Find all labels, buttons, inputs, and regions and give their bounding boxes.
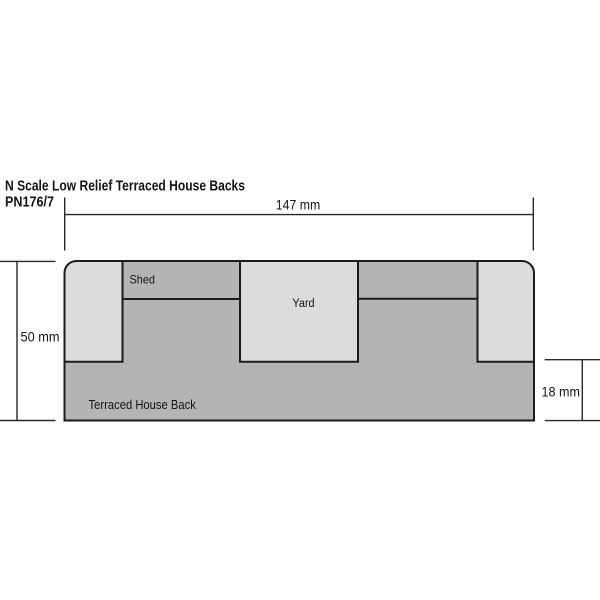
svg-text:147 mm: 147 mm [276,197,321,213]
svg-text:18 mm: 18 mm [542,384,581,400]
svg-text:Yard: Yard [292,298,314,310]
svg-text:50 mm: 50 mm [21,329,60,345]
svg-text:N Scale Low Relief Terraced Ho: N Scale Low Relief Terraced House Backs [5,179,245,195]
svg-text:Terraced House Back: Terraced House Back [89,398,197,412]
svg-text:PN176/7: PN176/7 [5,195,54,211]
svg-text:Shed: Shed [130,273,156,287]
